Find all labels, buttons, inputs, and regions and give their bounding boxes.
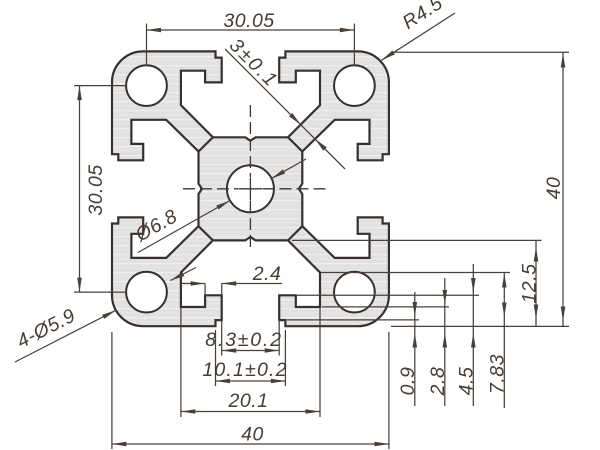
- svg-text:2.4: 2.4: [252, 263, 282, 285]
- svg-text:30.05: 30.05: [223, 10, 274, 32]
- svg-text:7.83: 7.83: [487, 354, 509, 394]
- svg-text:3±0.1: 3±0.1: [225, 34, 283, 92]
- svg-text:0.9: 0.9: [397, 367, 419, 396]
- svg-text:Ø6.8: Ø6.8: [131, 205, 181, 246]
- svg-text:12.5: 12.5: [519, 264, 541, 304]
- svg-text:R4.5: R4.5: [399, 0, 447, 34]
- svg-text:10.1±0.2: 10.1±0.2: [202, 359, 287, 381]
- svg-text:40: 40: [241, 424, 264, 446]
- svg-text:40: 40: [543, 177, 565, 200]
- svg-text:4.5: 4.5: [456, 367, 478, 396]
- svg-text:2.8: 2.8: [427, 367, 449, 397]
- svg-text:30.05: 30.05: [85, 164, 107, 215]
- svg-text:8.3±0.2: 8.3±0.2: [205, 329, 283, 351]
- svg-text:20.1: 20.1: [228, 390, 269, 412]
